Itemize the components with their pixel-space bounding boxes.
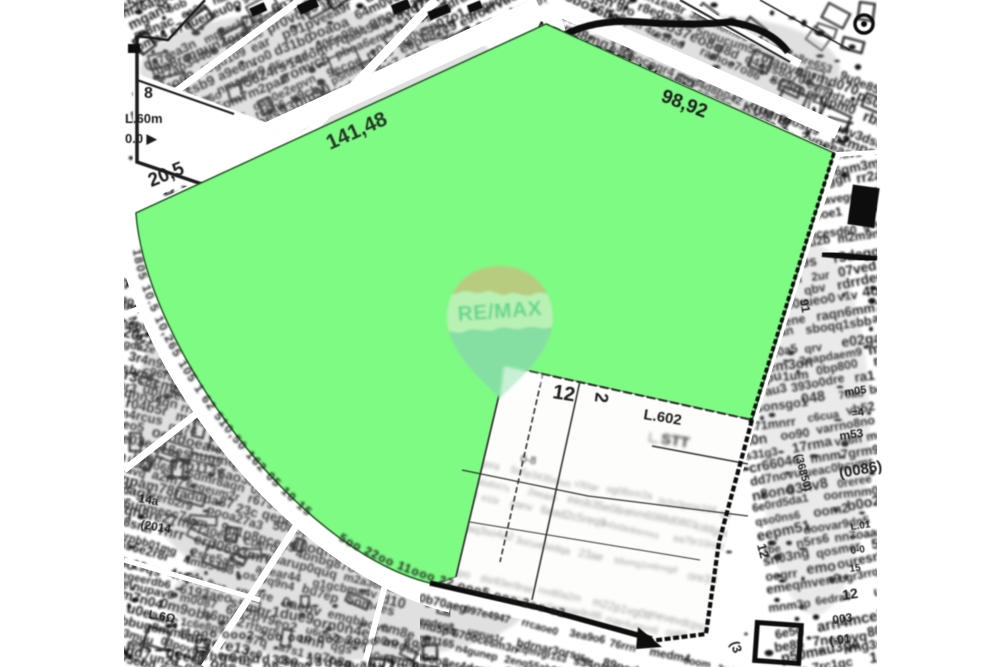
svg-text:L.60m: L.60m [125, 111, 163, 126]
svg-text:0.0 ▶: 0.0 ▶ [125, 131, 158, 146]
svg-text:0-0: 0-0 [850, 544, 866, 557]
svg-text:(-01: (-01 [828, 631, 851, 648]
svg-text:91: 91 [797, 298, 813, 314]
svg-text:12: 12 [841, 585, 859, 603]
svg-text:0-8: 0-8 [520, 453, 538, 467]
svg-text:12: 12 [551, 381, 576, 406]
svg-text:8: 8 [144, 85, 153, 102]
svg-text:15: 15 [849, 562, 862, 575]
svg-text:003: 003 [831, 610, 853, 627]
